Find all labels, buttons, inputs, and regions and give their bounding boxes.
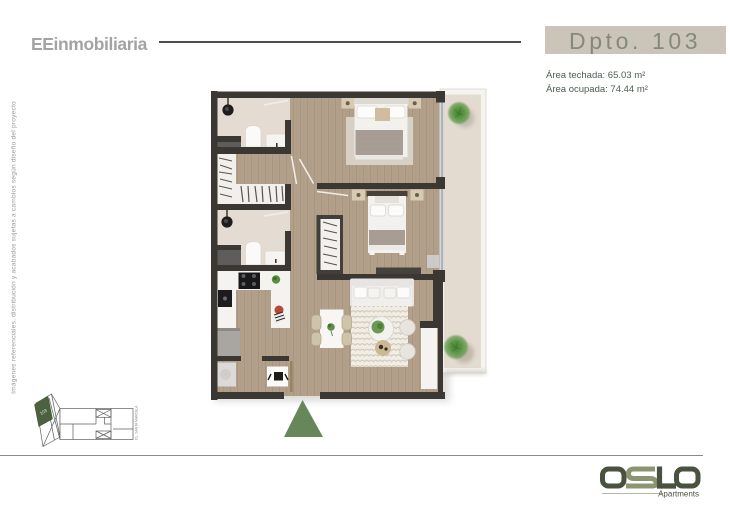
svg-text:Apartments: Apartments	[658, 490, 699, 499]
svg-text:CL. SANTA MARCELA: CL. SANTA MARCELA	[135, 405, 139, 440]
